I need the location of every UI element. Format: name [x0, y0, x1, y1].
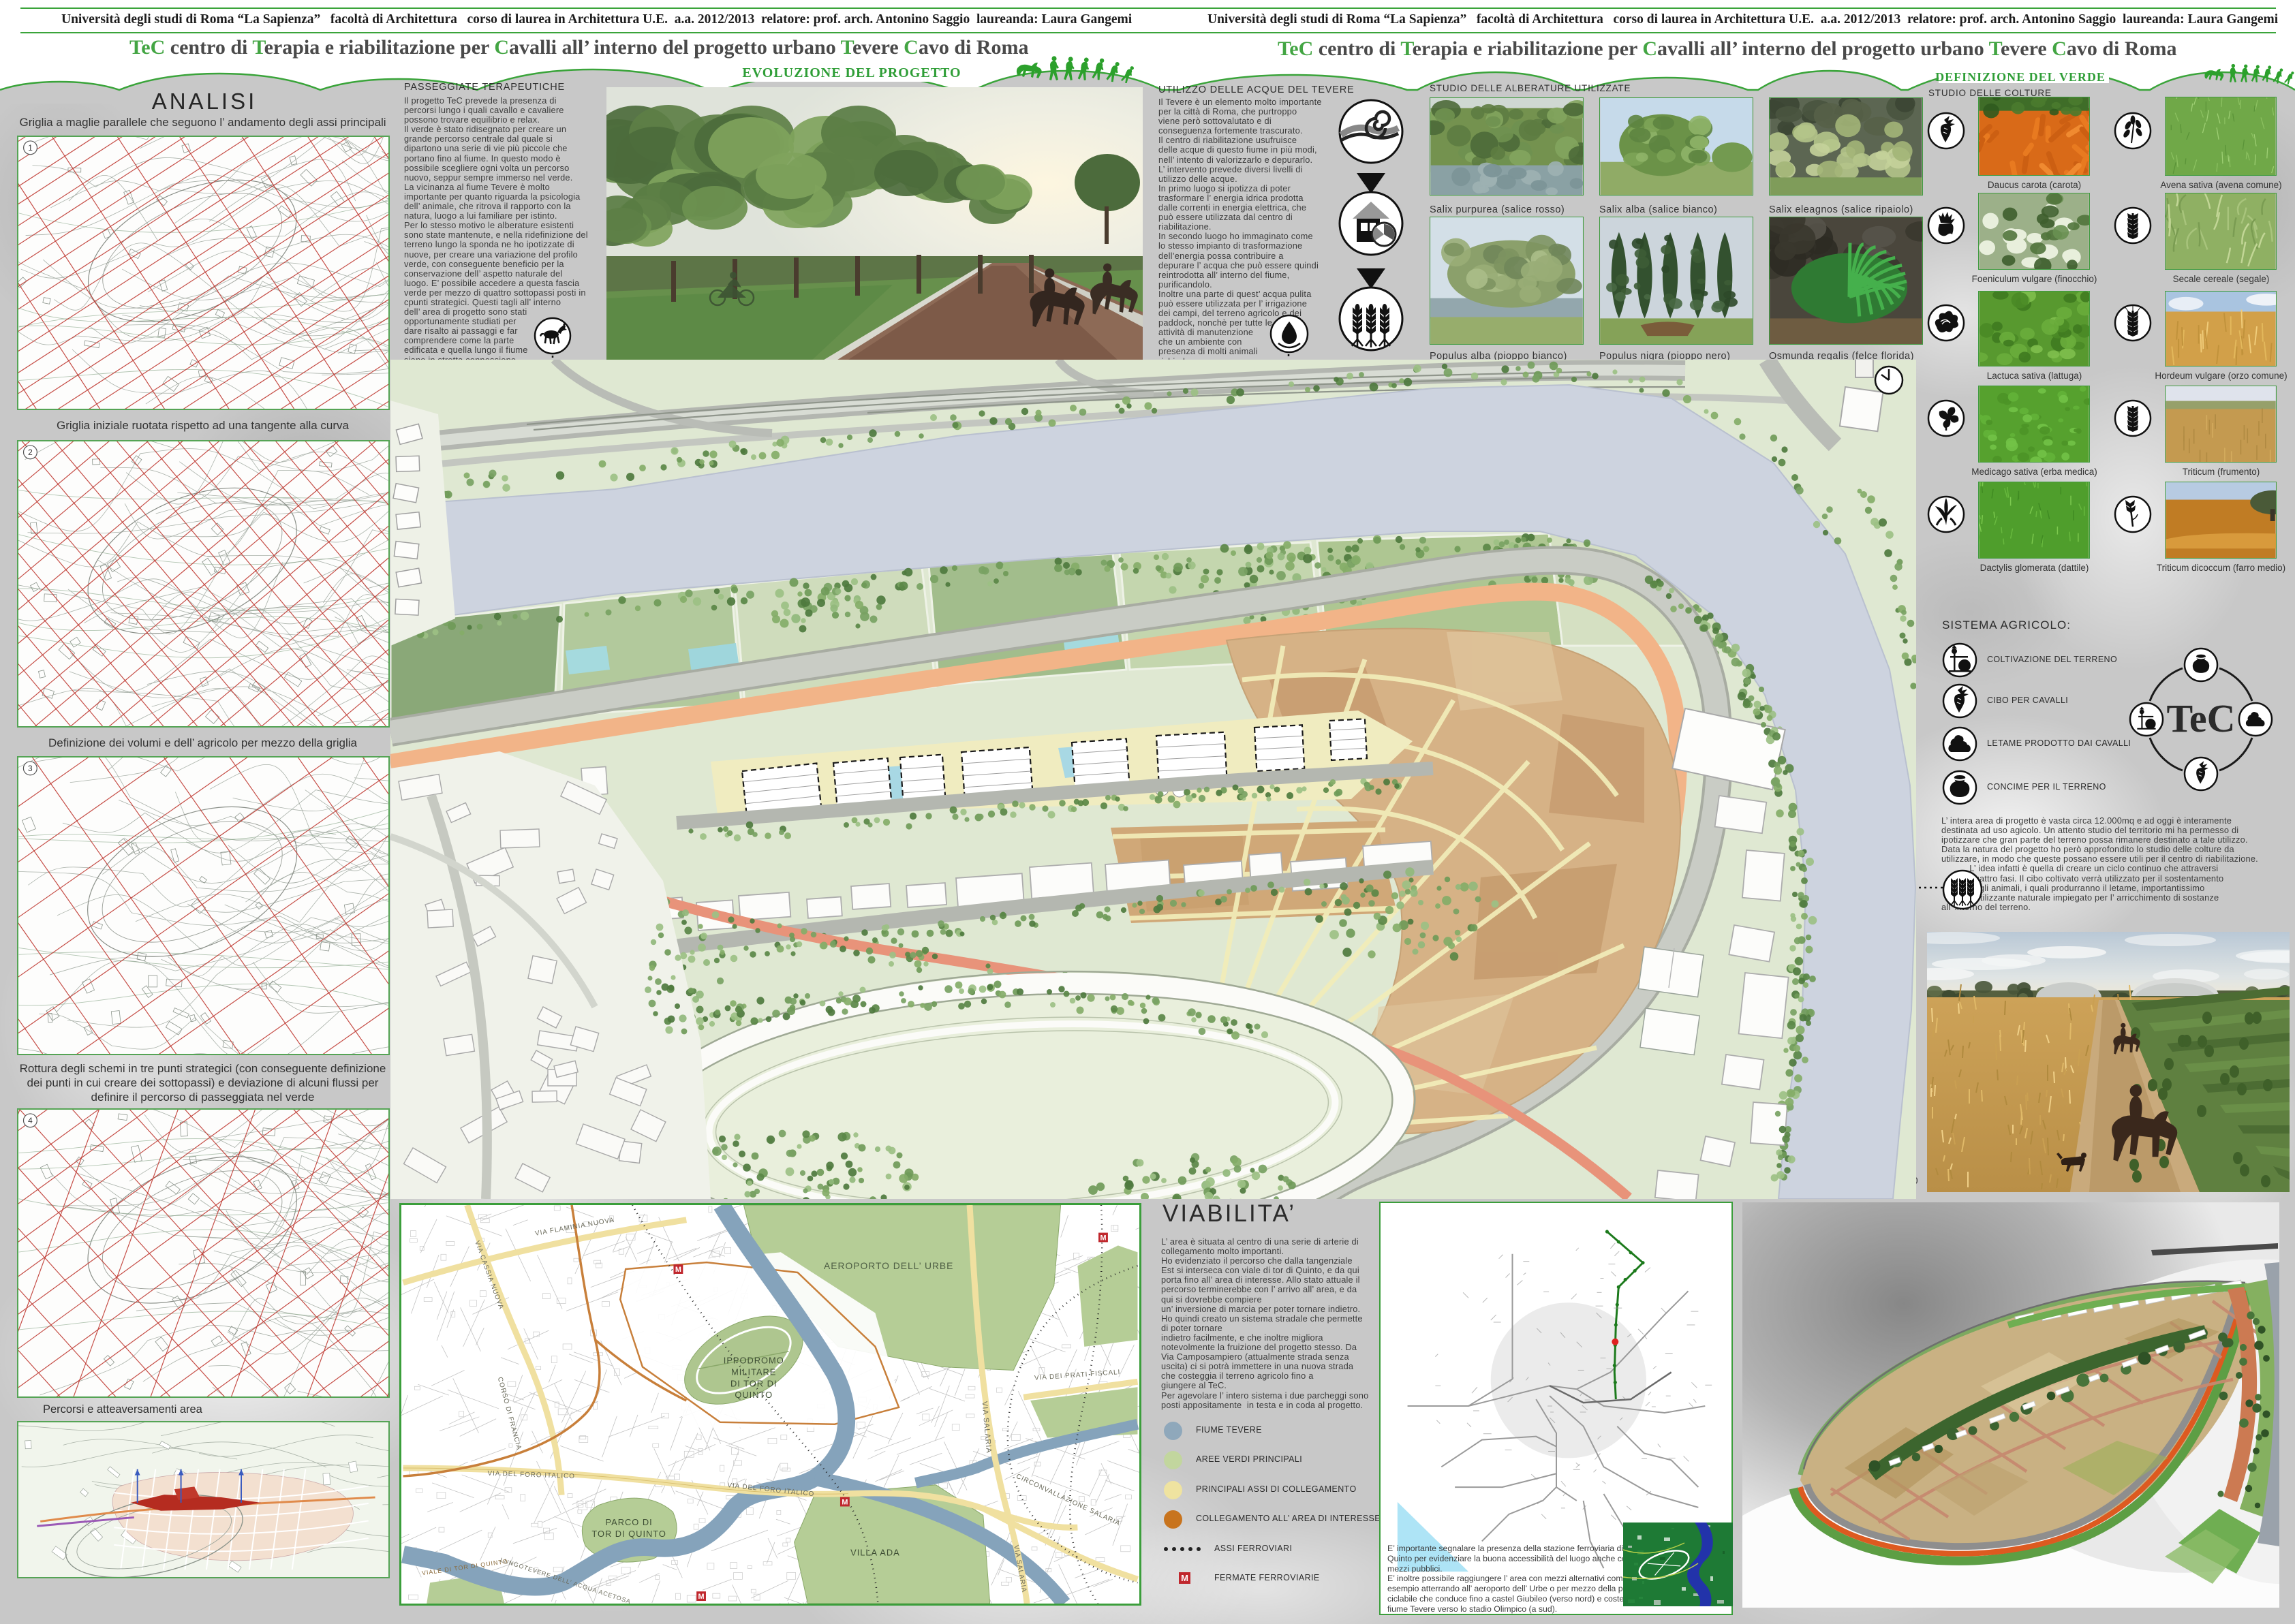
svg-text:2: 2 [28, 448, 33, 457]
svg-text:IPPODROMO: IPPODROMO [724, 1356, 784, 1366]
svg-text:TOR DI QUINTO: TOR DI QUINTO [591, 1529, 666, 1539]
svg-text:TeC: TeC [2167, 696, 2236, 740]
svg-text:M: M [698, 1593, 705, 1601]
svg-text:M: M [1100, 1234, 1106, 1242]
svg-text:M: M [842, 1498, 848, 1506]
svg-text:MILITARE: MILITARE [731, 1367, 776, 1377]
svg-text:DI TOR DI: DI TOR DI [730, 1378, 777, 1388]
svg-text:PARCO DI: PARCO DI [606, 1517, 653, 1527]
svg-text:M: M [675, 1266, 681, 1274]
svg-text:3: 3 [28, 764, 33, 773]
svg-text:VIA SALARIA: VIA SALARIA [980, 1401, 993, 1454]
svg-text:VILLA ADA: VILLA ADA [850, 1548, 900, 1558]
svg-text:1: 1 [28, 143, 33, 153]
svg-text:AEROPORTO DELL’ URBE: AEROPORTO DELL’ URBE [824, 1260, 953, 1271]
svg-text:QUINTO: QUINTO [735, 1390, 773, 1400]
svg-text:CORSO DI FRANCIA: CORSO DI FRANCIA [496, 1376, 523, 1451]
svg-text:VIA CASSIA NUOVA: VIA CASSIA NUOVA [473, 1240, 505, 1311]
svg-text:4: 4 [28, 1116, 33, 1125]
svg-text:VIA DEI PRATI FISCALI: VIA DEI PRATI FISCALI [1034, 1369, 1121, 1382]
